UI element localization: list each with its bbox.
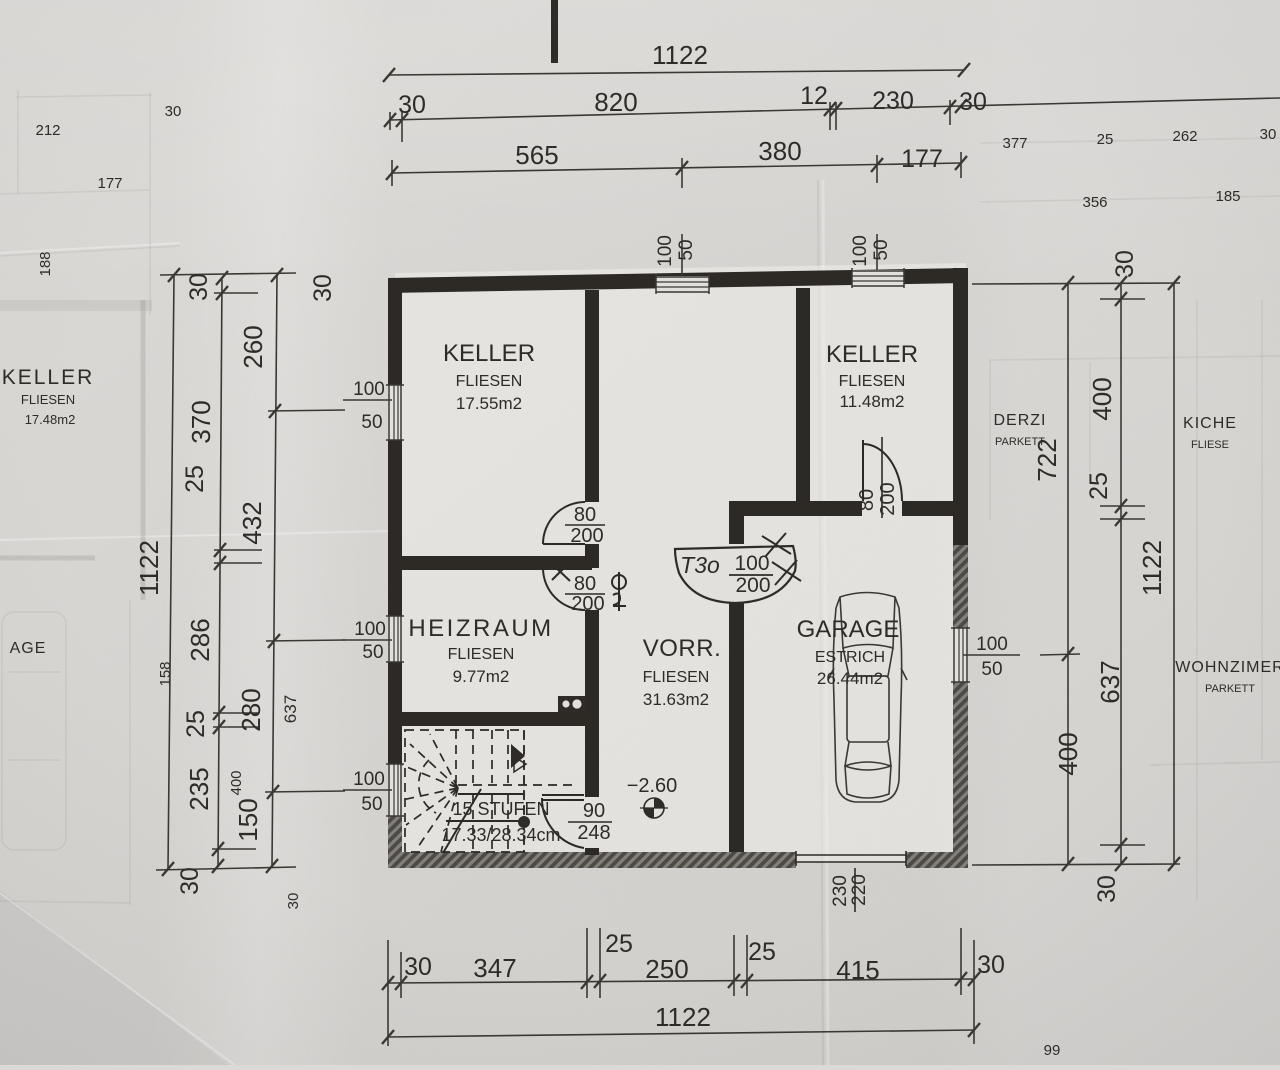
svg-text:KICHE: KICHE: [1183, 415, 1237, 432]
svg-text:235: 235: [184, 767, 214, 810]
svg-text:FLIESEN: FLIESEN: [456, 373, 523, 390]
svg-text:FLIESEN: FLIESEN: [448, 646, 515, 663]
svg-text:80: 80: [574, 573, 596, 595]
svg-text:FLIESE: FLIESE: [1191, 439, 1229, 451]
svg-text:1122: 1122: [134, 540, 164, 596]
svg-text:30: 30: [185, 273, 213, 301]
svg-text:GARAGE: GARAGE: [797, 616, 900, 643]
svg-text:50: 50: [676, 239, 697, 260]
svg-text:432: 432: [237, 501, 267, 544]
svg-text:25: 25: [181, 465, 209, 493]
svg-text:400: 400: [1053, 732, 1083, 775]
svg-text:230: 230: [830, 875, 851, 907]
svg-text:30: 30: [1093, 875, 1121, 903]
svg-text:100: 100: [850, 235, 871, 267]
svg-text:230: 230: [872, 87, 914, 115]
svg-text:HEIZRAUM: HEIZRAUM: [408, 615, 553, 642]
svg-text:12: 12: [800, 82, 828, 110]
svg-text:356: 356: [1082, 194, 1107, 211]
svg-text:248: 248: [577, 822, 610, 844]
svg-text:50: 50: [361, 794, 382, 815]
svg-text:177: 177: [901, 145, 943, 173]
svg-text:200: 200: [877, 482, 899, 515]
svg-text:347: 347: [473, 953, 516, 983]
svg-text:200: 200: [735, 574, 770, 597]
svg-text:DERZI: DERZI: [994, 412, 1047, 429]
svg-text:260: 260: [238, 325, 268, 368]
svg-text:1122: 1122: [652, 40, 708, 70]
svg-text:188: 188: [37, 251, 54, 276]
svg-text:FLIESEN: FLIESEN: [643, 669, 710, 686]
svg-text:50: 50: [981, 659, 1002, 680]
svg-text:WOHNZIMER: WOHNZIMER: [1175, 659, 1280, 676]
svg-text:820: 820: [594, 87, 637, 117]
svg-text:262: 262: [1172, 128, 1197, 145]
svg-text:415: 415: [836, 955, 879, 985]
svg-text:25: 25: [1097, 131, 1114, 148]
svg-text:25: 25: [182, 710, 210, 738]
svg-text:80: 80: [574, 504, 596, 526]
svg-text:200: 200: [571, 593, 604, 615]
svg-text:100: 100: [976, 634, 1008, 655]
svg-text:100: 100: [353, 379, 385, 400]
svg-text:280: 280: [236, 688, 266, 731]
svg-text:220: 220: [849, 874, 870, 906]
svg-text:377: 377: [1002, 135, 1027, 152]
svg-text:30: 30: [285, 893, 302, 910]
svg-text:30: 30: [977, 951, 1005, 979]
svg-text:FLIESEN: FLIESEN: [839, 373, 906, 390]
svg-text:400: 400: [228, 770, 245, 795]
svg-text:400: 400: [1087, 377, 1117, 420]
svg-text:722: 722: [1032, 438, 1062, 481]
svg-text:11.48m2: 11.48m2: [840, 392, 905, 411]
svg-text:KELLER: KELLER: [443, 340, 535, 367]
svg-text:50: 50: [362, 642, 383, 663]
svg-text:−2.60: −2.60: [627, 775, 678, 797]
svg-text:1122: 1122: [1137, 540, 1167, 596]
svg-text:25: 25: [605, 930, 633, 958]
svg-text:T3o: T3o: [680, 552, 720, 578]
svg-text:30: 30: [309, 274, 337, 302]
svg-text:30: 30: [1260, 126, 1277, 143]
svg-text:80: 80: [856, 489, 878, 511]
svg-text:30: 30: [1111, 250, 1139, 278]
svg-text:31.63m2: 31.63m2: [643, 690, 709, 709]
svg-text:212: 212: [35, 122, 60, 139]
svg-text:AGE: AGE: [10, 640, 47, 657]
svg-text:30: 30: [959, 88, 987, 116]
svg-text:380: 380: [758, 136, 801, 166]
svg-text:250: 250: [645, 954, 688, 984]
svg-text:17.48m2: 17.48m2: [25, 412, 76, 427]
svg-text:30: 30: [176, 867, 204, 895]
svg-text:370: 370: [186, 400, 216, 443]
svg-text:30: 30: [165, 103, 182, 120]
svg-text:100: 100: [354, 619, 386, 640]
svg-text:50: 50: [361, 412, 382, 433]
svg-text:17.55m2: 17.55m2: [456, 394, 522, 413]
svg-text:90: 90: [583, 800, 605, 822]
svg-text:KELLER: KELLER: [2, 366, 95, 389]
svg-text:100: 100: [353, 769, 385, 790]
svg-text:150: 150: [233, 798, 263, 841]
svg-text:PARKETT: PARKETT: [1205, 683, 1255, 695]
svg-text:17.33/28.34cm: 17.33/28.34cm: [441, 825, 560, 845]
svg-text:286: 286: [185, 618, 215, 661]
svg-text:15 STUFEN: 15 STUFEN: [452, 799, 549, 819]
svg-text:158: 158: [157, 661, 174, 686]
svg-text:FLIESEN: FLIESEN: [21, 392, 75, 407]
svg-text:100: 100: [655, 235, 676, 267]
svg-text:30: 30: [404, 953, 432, 981]
svg-text:99: 99: [1044, 1042, 1061, 1059]
svg-text:177: 177: [97, 175, 122, 192]
svg-text:1122: 1122: [655, 1002, 711, 1032]
svg-text:25: 25: [748, 938, 776, 966]
svg-text:KELLER: KELLER: [826, 341, 918, 368]
svg-text:50: 50: [871, 239, 892, 260]
svg-text:637: 637: [281, 695, 300, 723]
svg-text:100: 100: [734, 552, 769, 575]
svg-text:ESTRICH: ESTRICH: [815, 649, 885, 666]
svg-text:25: 25: [1085, 472, 1113, 500]
svg-text:637: 637: [1095, 660, 1125, 703]
svg-text:VORR.: VORR.: [643, 635, 722, 662]
svg-text:565: 565: [515, 140, 558, 170]
svg-text:200: 200: [570, 525, 603, 547]
svg-text:30: 30: [398, 91, 426, 119]
svg-text:185: 185: [1215, 188, 1240, 205]
svg-text:9.77m2: 9.77m2: [453, 667, 510, 686]
svg-text:26.44m2: 26.44m2: [817, 669, 883, 688]
